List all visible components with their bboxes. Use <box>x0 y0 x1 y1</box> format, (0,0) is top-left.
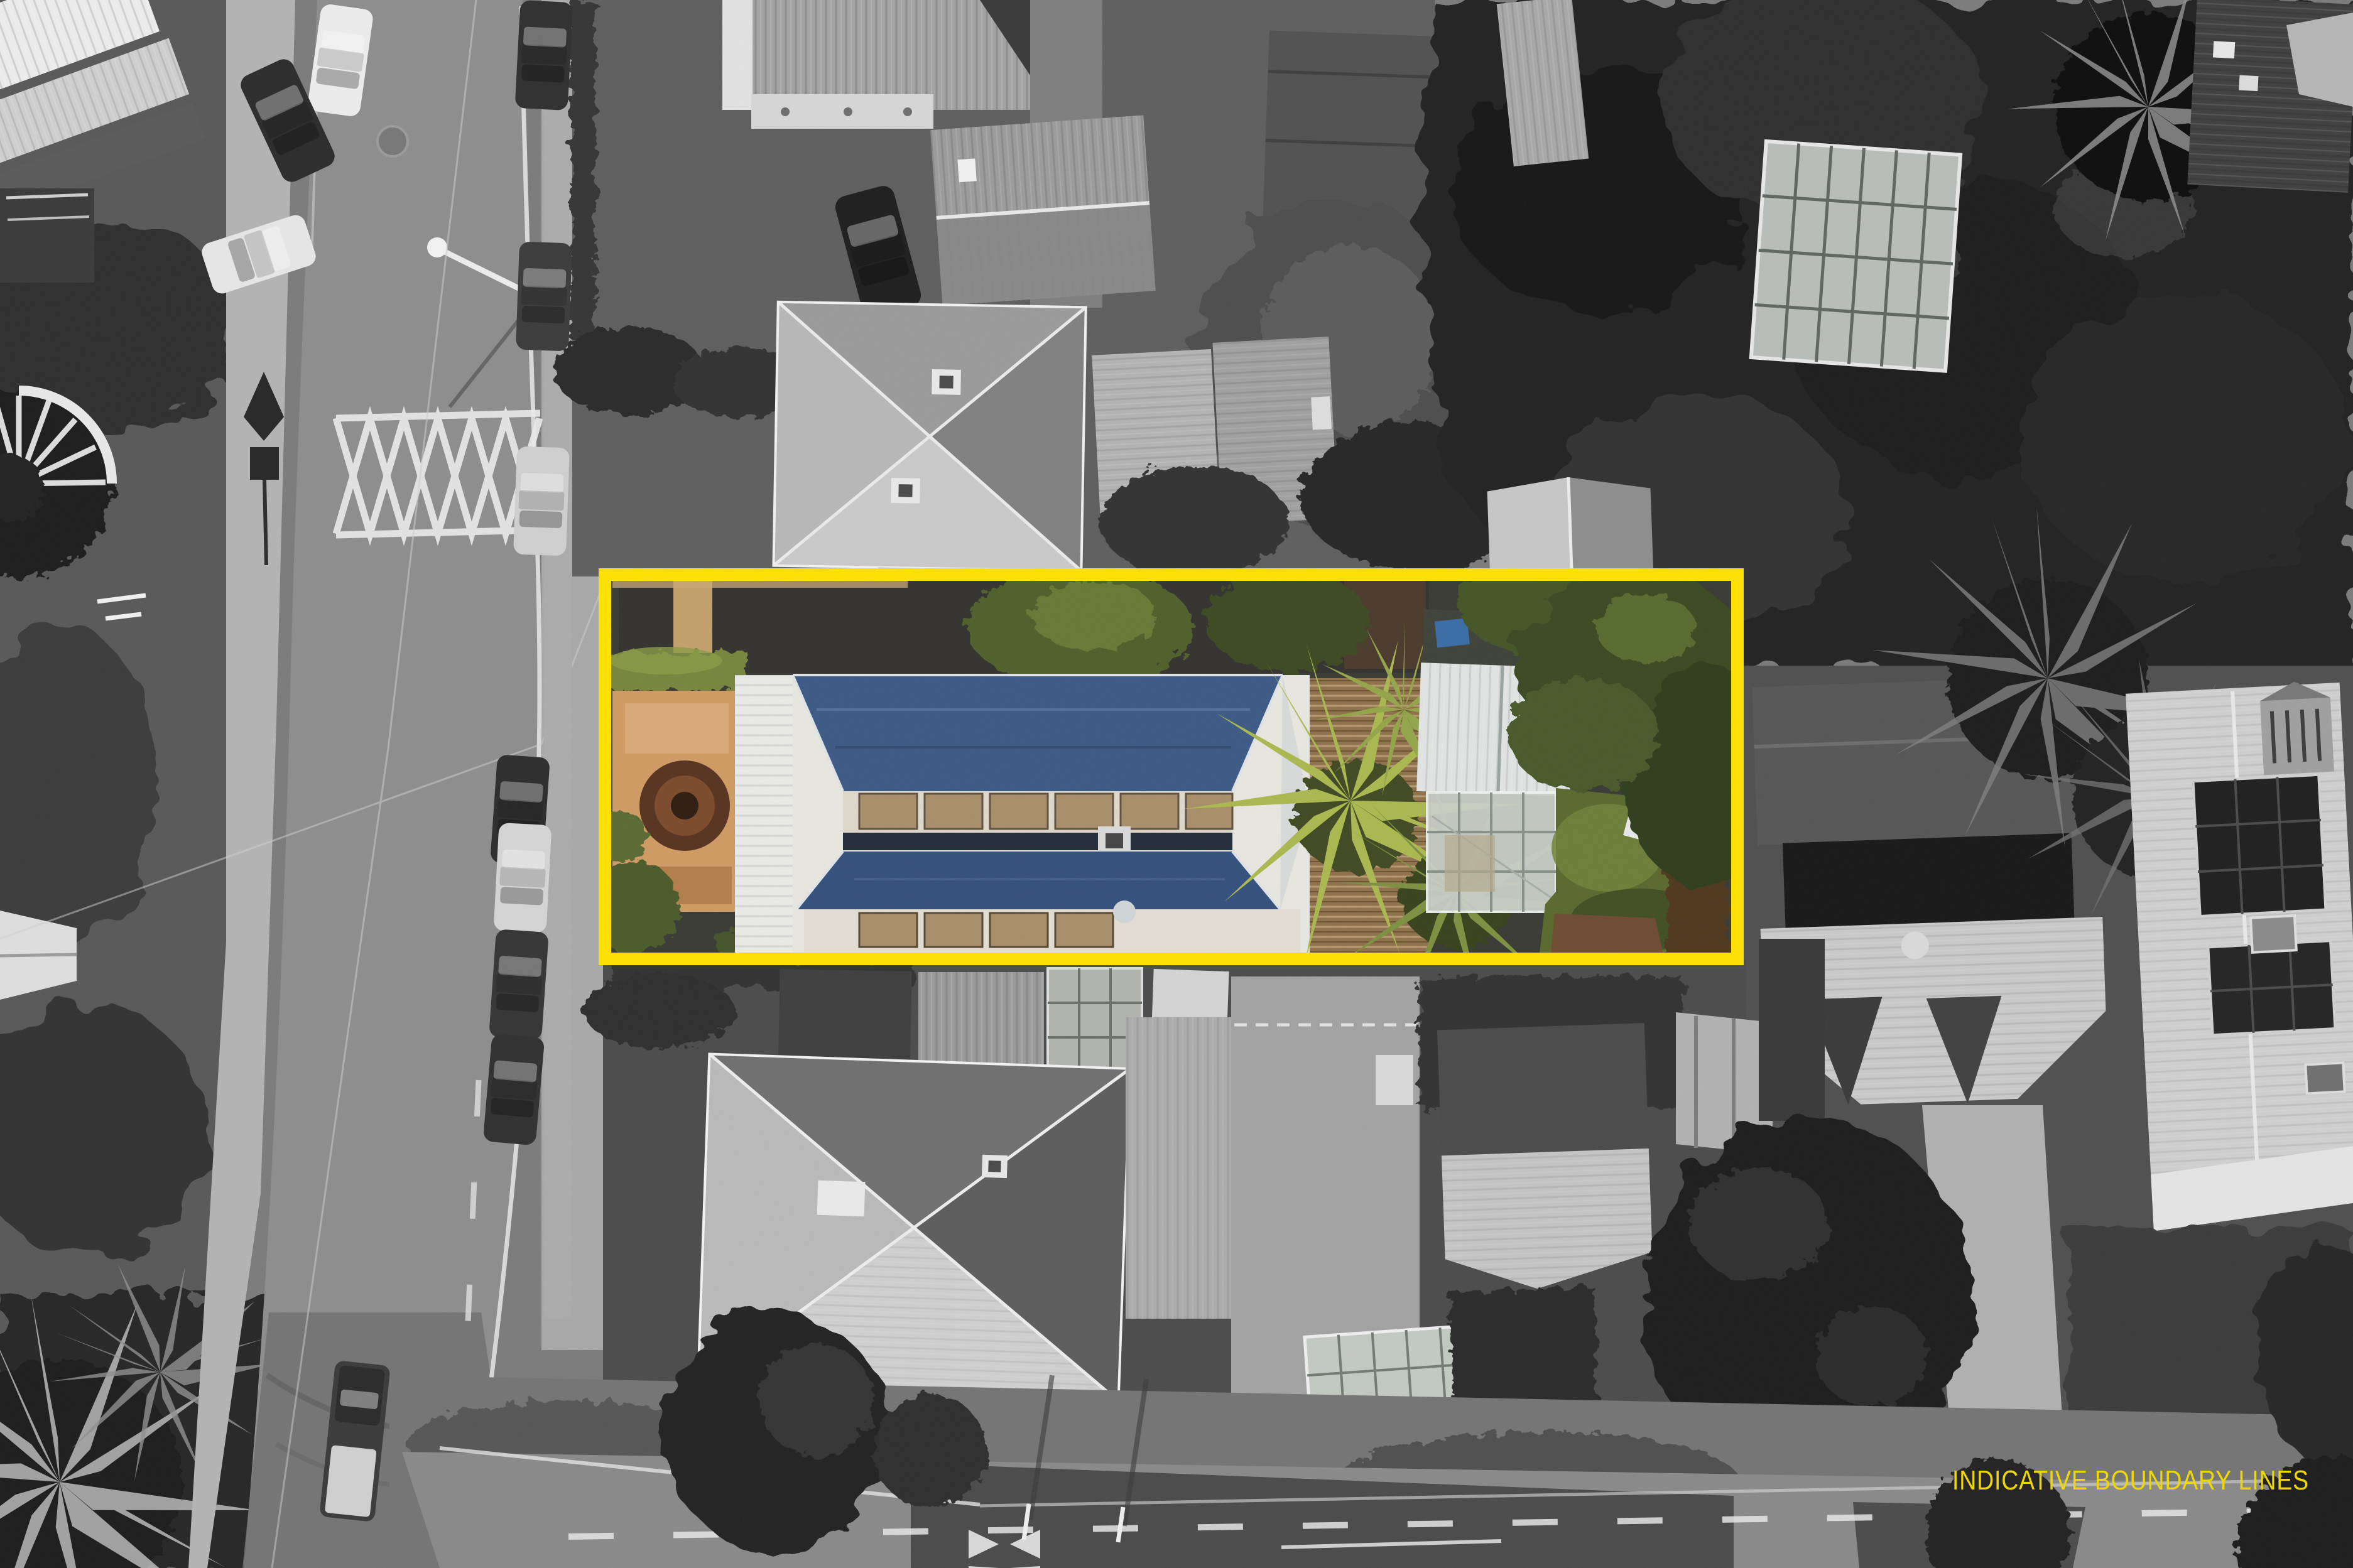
photo-grain-overlay <box>0 0 2353 1568</box>
aerial-photo-page: INDICATIVE BOUNDARY LINES <box>0 0 2353 1568</box>
aerial-photo: INDICATIVE BOUNDARY LINES <box>0 0 2353 1568</box>
